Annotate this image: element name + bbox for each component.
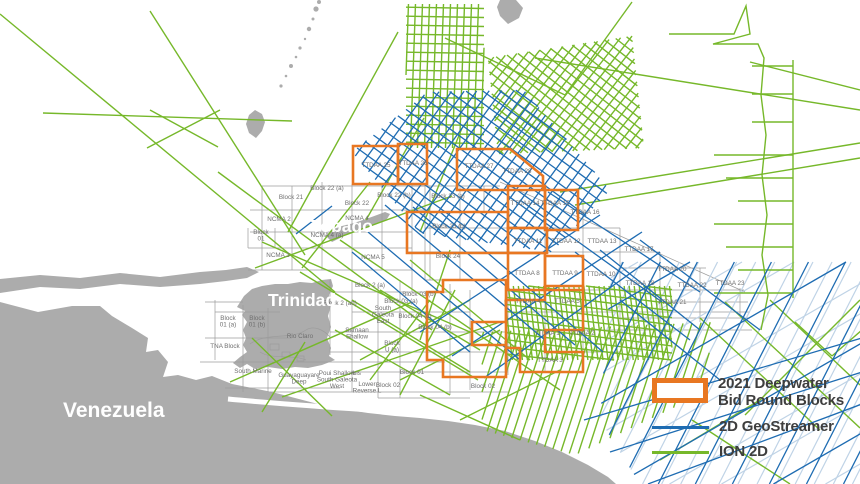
seismic-line bbox=[406, 7, 484, 8]
islet bbox=[279, 84, 282, 87]
block-label: Block 2 (a) bbox=[355, 282, 385, 289]
block-label: NCMA 5 bbox=[361, 254, 385, 261]
block-label: Block 03 (b) bbox=[402, 291, 436, 298]
block-label: TTDAA 5 bbox=[554, 298, 580, 305]
islet bbox=[295, 56, 298, 59]
island-grenada-area bbox=[246, 110, 265, 138]
block-label: TTDAA 16 bbox=[570, 209, 600, 216]
islet bbox=[313, 6, 318, 11]
geostreamer-line-swatch bbox=[652, 426, 709, 429]
seismic-line bbox=[575, 158, 860, 205]
seismic-line bbox=[406, 61, 484, 62]
block-label: TTDAA 8 bbox=[514, 270, 540, 277]
block-label: TTDAA 12 bbox=[551, 238, 581, 245]
block-label: TTDAA 22 bbox=[677, 282, 707, 289]
seismic-line bbox=[406, 115, 484, 116]
block-label: Block 04 (b) bbox=[418, 324, 452, 331]
legend-item-geostreamer: 2D GeoStreamer bbox=[652, 419, 852, 436]
islet bbox=[298, 46, 301, 49]
seismic-line bbox=[406, 79, 484, 80]
block-label: Ibis bbox=[351, 370, 361, 377]
islet bbox=[304, 38, 306, 40]
block-label: Block 23 (a) bbox=[431, 193, 465, 200]
seismic-line bbox=[406, 88, 484, 89]
legend-label-ion2d: ION 2D bbox=[719, 444, 768, 461]
block-label: NCMA 3 bbox=[266, 252, 290, 259]
islet bbox=[307, 27, 311, 31]
block-label: Block 22 bbox=[345, 200, 370, 207]
block-label: TTDAA 26 bbox=[398, 160, 428, 167]
block-label: TTDAA 14 bbox=[510, 200, 540, 207]
block-label: Block 22 (b) bbox=[377, 192, 411, 199]
seismic-line bbox=[406, 16, 484, 17]
block-label: Block 02 bbox=[471, 383, 496, 390]
seismic-line bbox=[494, 116, 540, 152]
legend-item-bid-blocks: 2021 Deepwater Bid Round Blocks bbox=[652, 376, 852, 410]
block-label: Block01 bbox=[253, 229, 269, 243]
block-label: TTDAA 10 bbox=[586, 271, 616, 278]
block-label: TTDAA 27 bbox=[464, 163, 494, 170]
block-label: Block01 (a) bbox=[220, 315, 237, 329]
islet bbox=[285, 75, 288, 78]
block-label: SouthGaleotaEast bbox=[372, 305, 395, 325]
block-label: Block 02 bbox=[376, 382, 401, 389]
block-label: Block 03 (a) bbox=[384, 298, 418, 305]
block-label: Rio Claro bbox=[287, 333, 314, 340]
block-label: TTDAA 2 bbox=[569, 330, 595, 337]
seismic-line bbox=[578, 326, 619, 453]
seismic-line bbox=[406, 70, 484, 71]
block-label: Block 21 bbox=[279, 194, 304, 201]
block-label: NCMA 2 bbox=[267, 216, 291, 223]
seismic-line bbox=[604, 105, 639, 150]
block-label: TTDAA 23 bbox=[715, 280, 745, 287]
islet bbox=[317, 0, 321, 4]
block-label: TTDAA 21 bbox=[657, 299, 687, 306]
islet bbox=[289, 64, 293, 68]
seismic-line bbox=[415, 90, 514, 227]
legend-item-ion2d: ION 2D bbox=[652, 444, 852, 461]
ion2d-line-swatch bbox=[652, 451, 709, 454]
seismic-line bbox=[406, 4, 408, 75]
legend-label-geostreamer: 2D GeoStreamer bbox=[719, 419, 834, 436]
block-label: TTDAA 3 bbox=[537, 357, 563, 364]
block-label: Block 23 (b) bbox=[432, 223, 466, 230]
seismic-line bbox=[406, 52, 484, 53]
seismic-line bbox=[636, 139, 643, 148]
block-label: TNA Block bbox=[210, 343, 240, 350]
islet bbox=[312, 18, 315, 21]
seismic-line bbox=[528, 328, 565, 442]
block-label: Block01 (b) bbox=[249, 315, 266, 329]
block-label: TTDAA 9 bbox=[552, 270, 578, 277]
paria-peninsula bbox=[0, 267, 259, 293]
block-label: TTDAA 17 bbox=[624, 246, 654, 253]
place-label: Venezuela bbox=[63, 399, 165, 422]
block-label: Block 01 bbox=[400, 369, 425, 376]
map-figure: Block 21Block 22 (a)Block 22Block 22 (b)… bbox=[0, 0, 860, 484]
place-label: Tobago bbox=[311, 216, 373, 236]
block-label: TTDAA 18 bbox=[625, 280, 655, 287]
block-label: Block 24 bbox=[436, 253, 461, 260]
seismic-line bbox=[406, 34, 484, 35]
place-label: Trinidad bbox=[268, 290, 336, 310]
block-label: BlockU (a) bbox=[384, 340, 400, 354]
island-north bbox=[497, 0, 523, 24]
block-label: SamaanShallow bbox=[345, 327, 369, 341]
bid-blocks-swatch bbox=[652, 378, 708, 403]
seismic-line bbox=[560, 143, 860, 192]
block-label: TTDAA 28 bbox=[502, 168, 532, 175]
block-label: Block 22 (a) bbox=[310, 185, 344, 192]
seismic-line bbox=[541, 36, 632, 152]
seismic-line bbox=[0, 14, 335, 292]
seismic-line bbox=[406, 25, 484, 26]
block-label: TTDAA 13 bbox=[587, 238, 617, 245]
block-label: TTDAA 15 bbox=[540, 200, 570, 207]
block-label: TTDAA 25 bbox=[361, 162, 391, 169]
block-label: TTDAA 4 bbox=[515, 298, 541, 305]
seismic-line bbox=[406, 43, 484, 44]
block-label: TTDAA 20 bbox=[657, 266, 687, 273]
block-label: TTDAA 1 bbox=[534, 330, 560, 337]
block-label: GuayaguayareDeep bbox=[278, 372, 320, 386]
block-label: South Marine bbox=[234, 368, 272, 375]
block-label: TTDAA 11 bbox=[514, 238, 543, 245]
block-label: Block 04 (c) bbox=[398, 313, 431, 320]
legend-label-bid-blocks: 2021 Deepwater Bid Round Blocks bbox=[718, 376, 852, 410]
map-legend: 2021 Deepwater Bid Round Blocks 2D GeoSt… bbox=[652, 376, 852, 470]
seismic-line bbox=[288, 32, 398, 232]
